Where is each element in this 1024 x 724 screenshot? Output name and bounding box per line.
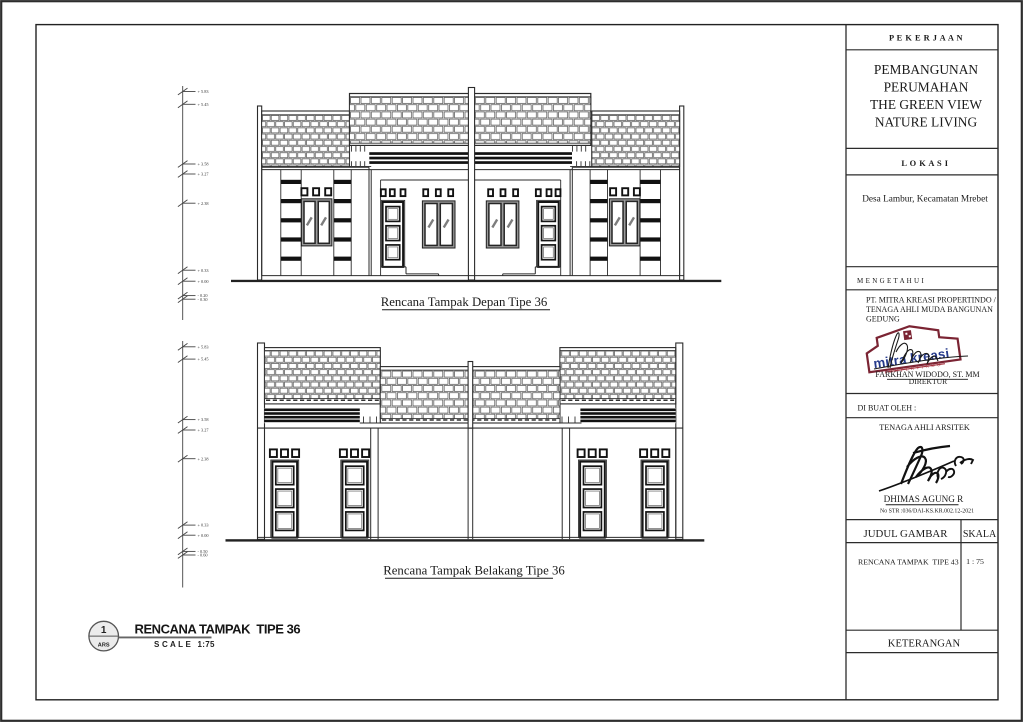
svg-text:+ 5.83: + 5.83: [198, 344, 209, 349]
svg-text:- 0.30: - 0.30: [198, 297, 208, 302]
svg-text:TENAGA AHLI MUDA BANGUNAN: TENAGA AHLI MUDA BANGUNAN: [866, 305, 993, 314]
svg-text:Rencana Tampak Belakang Tipe 3: Rencana Tampak Belakang Tipe 36: [383, 563, 565, 577]
svg-text:GEDUNG: GEDUNG: [866, 315, 900, 324]
svg-text:1: 1: [101, 625, 107, 636]
svg-text:+ 3.58: + 3.58: [198, 162, 209, 167]
svg-text:+ 3.58: + 3.58: [198, 417, 209, 422]
svg-text:+ 3.27: + 3.27: [198, 172, 210, 177]
svg-text:RENCANA TAMPAK TIPE 43: RENCANA TAMPAK TIPE 43: [858, 558, 959, 567]
svg-text:SKALA: SKALA: [963, 529, 997, 540]
svg-text:DIREKTUR: DIREKTUR: [909, 377, 948, 386]
svg-text:+ 0.33: + 0.33: [198, 268, 209, 273]
svg-text:- 0.60: - 0.60: [198, 553, 208, 558]
svg-text:PT. MITRA KREASI PROPERTINDO /: PT. MITRA KREASI PROPERTINDO /: [866, 296, 997, 305]
svg-text:Desa Lambur, Kecamatan Mrebet: Desa Lambur, Kecamatan Mrebet: [862, 195, 988, 205]
svg-text:No STR :036/DAI-KS.KR.002.12-2: No STR :036/DAI-KS.KR.002.12-2021: [880, 509, 974, 515]
svg-text:KETERANGAN: KETERANGAN: [888, 639, 961, 650]
svg-text:+ 0.00: + 0.00: [198, 533, 209, 538]
svg-text:+ 2.38: + 2.38: [198, 201, 209, 206]
svg-text:NATURE LIVING: NATURE LIVING: [875, 115, 978, 130]
svg-text:JUDUL GAMBAR: JUDUL GAMBAR: [864, 528, 949, 540]
svg-text:TENAGA AHLI ARSITEK: TENAGA AHLI ARSITEK: [879, 423, 970, 432]
svg-text:L O K A S I: L O K A S I: [901, 159, 948, 168]
svg-text:PEMBANGUNAN: PEMBANGUNAN: [874, 62, 978, 77]
svg-text:P E K E R J A A N: P E K E R J A A N: [889, 34, 963, 43]
svg-text:+ 5.45: + 5.45: [198, 357, 209, 362]
svg-text:Rencana Tampak Depan Tipe 36: Rencana Tampak Depan Tipe 36: [381, 295, 548, 309]
svg-text:+ 2.38: + 2.38: [198, 456, 209, 461]
svg-text:RENCANA TAMPAK TIPE 36: RENCANA TAMPAK TIPE 36: [135, 621, 301, 636]
svg-text:+ 3.27: + 3.27: [198, 428, 210, 433]
svg-text:+ 5.45: + 5.45: [198, 102, 209, 107]
svg-text:PERUMAHAN: PERUMAHAN: [884, 80, 969, 95]
svg-text:+ 0.33: + 0.33: [198, 523, 209, 528]
svg-text:+ 0.00: + 0.00: [198, 279, 209, 284]
svg-text:+ 5.83: + 5.83: [198, 89, 209, 94]
svg-text:S C A L E: S C A L E: [154, 640, 192, 649]
svg-text:DI BUAT OLEH :: DI BUAT OLEH :: [858, 404, 917, 413]
svg-text:1:75: 1:75: [198, 640, 215, 649]
svg-text:ARS: ARS: [98, 643, 110, 649]
svg-text:THE GREEN VIEW: THE GREEN VIEW: [870, 97, 982, 112]
svg-text:1 : 75: 1 : 75: [966, 557, 984, 566]
svg-text:M E N G E T A H U I: M E N G E T A H U I: [857, 277, 924, 285]
svg-text:DHIMAS AGUNG R: DHIMAS AGUNG R: [884, 494, 965, 504]
